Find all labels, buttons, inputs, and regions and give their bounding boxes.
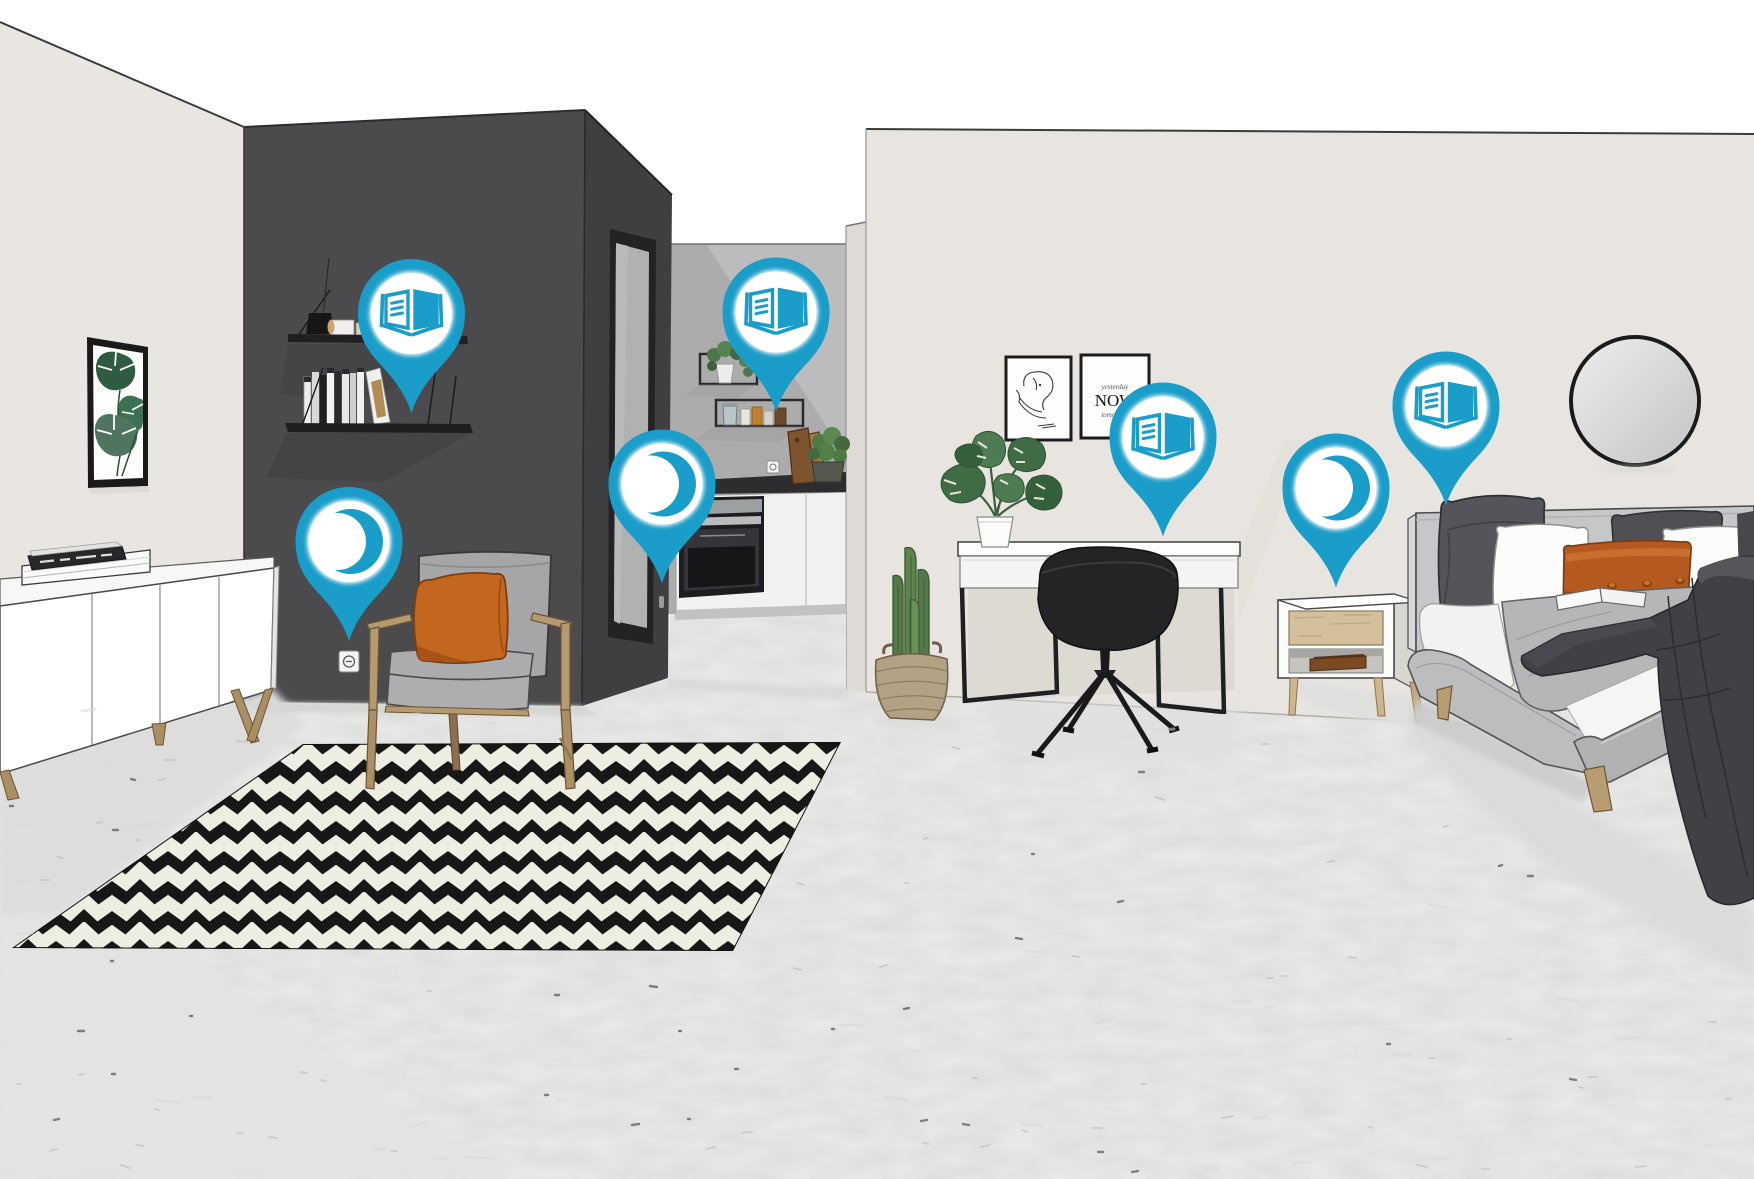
svg-text:yesterday: yesterday [1101, 383, 1129, 391]
